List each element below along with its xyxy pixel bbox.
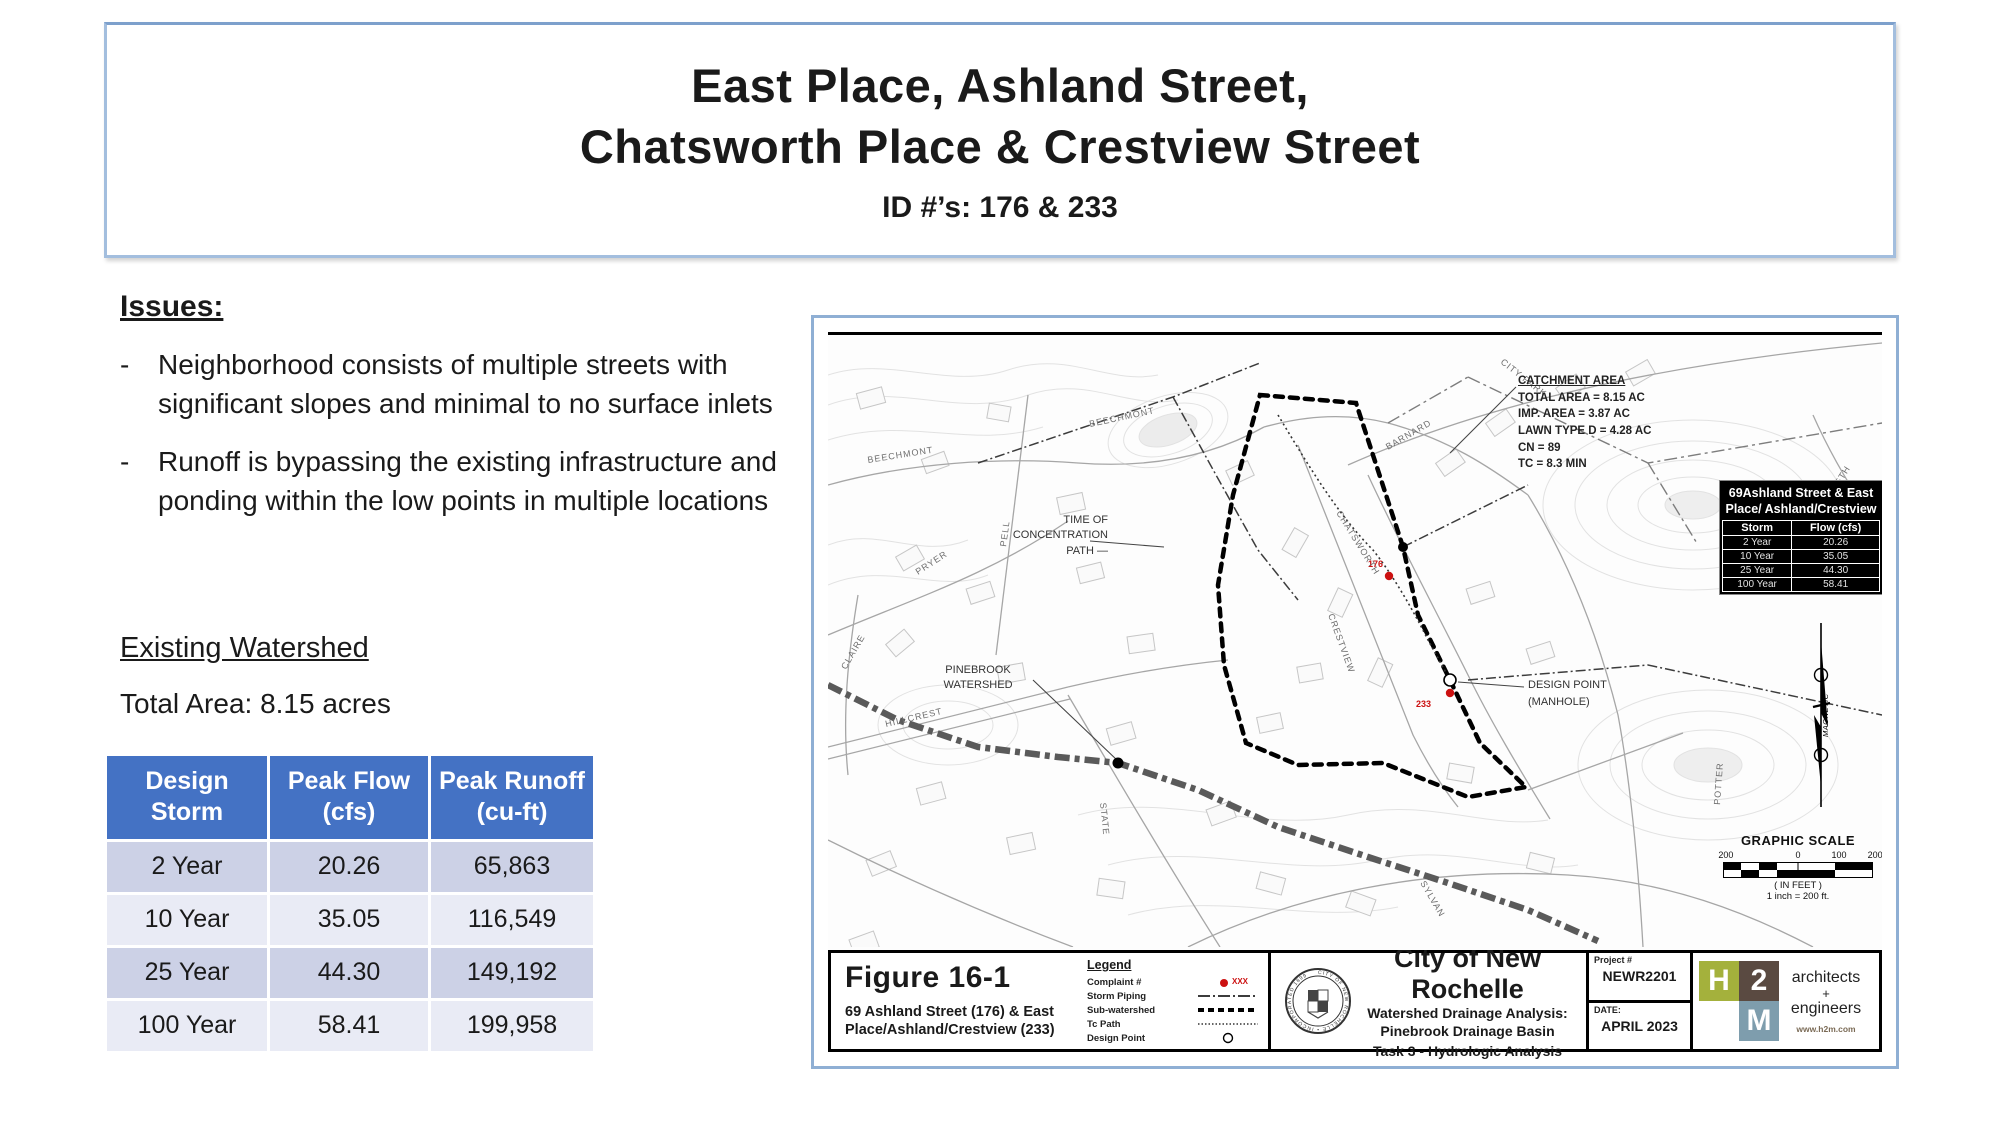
table-row: 2 Year 20.26 65,863 <box>107 842 593 892</box>
title-box: East Place, Ashland Street, Chatsworth P… <box>104 22 1896 258</box>
junction-dot <box>1398 542 1408 552</box>
stream-junction-dot <box>1113 758 1124 769</box>
legend-section: Legend Complaint # XXX Storm Piping Sub-… <box>1081 953 1271 1049</box>
catchment-line: CN = 89 <box>1518 440 1651 457</box>
scale-bar <box>1723 862 1873 878</box>
design-point-marker <box>1444 674 1456 686</box>
storm-table: Design Storm Peak Flow (cfs) Peak Runoff… <box>104 753 596 1054</box>
col-peak-runoff: Peak Runoff (cu-ft) <box>431 756 593 839</box>
complaint-233-label: 233 <box>1416 699 1431 709</box>
figure-subtitle: 69 Ashland Street (176) & East <box>845 1003 1077 1021</box>
cell-runoff: 149,192 <box>431 948 593 998</box>
page-title-line1: East Place, Ashland Street, <box>691 55 1309 116</box>
legend-label: Sub-watershed <box>1087 1005 1155 1016</box>
inset-row: 100 Year 58.41 <box>1723 578 1880 592</box>
street-label: STATE <box>1098 802 1111 836</box>
legend-storm-piping-symbol <box>1192 992 1258 1000</box>
design-point-label: DESIGN POINT (MANHOLE) <box>1528 677 1607 710</box>
dp-line: DESIGN POINT <box>1528 677 1607 694</box>
page-subtitle: ID #’s: 176 & 233 <box>882 191 1118 225</box>
svg-text:XXX: XXX <box>1232 977 1249 986</box>
toc-line: PATH — <box>978 544 1108 559</box>
bullet-dash: - <box>120 443 158 520</box>
h2m-logo: H 2 M <box>1699 961 1779 1041</box>
inset-col-flow: Flow (cfs) <box>1792 521 1880 536</box>
catchment-title: CATCHMENT AREA <box>1518 373 1651 390</box>
col-peak-flow: Peak Flow (cfs) <box>270 756 428 839</box>
toc-line: TIME OF <box>978 513 1108 528</box>
figure-subtitle: Place/Ashland/Crestview (233) <box>845 1021 1077 1039</box>
catchment-line: TC = 8.3 MIN <box>1518 456 1651 473</box>
legend-label: Tc Path <box>1087 1019 1121 1030</box>
street-label: CLAIRE <box>839 633 867 671</box>
date-value: APRIL 2023 <box>1594 1018 1685 1034</box>
north-arrow-icon: MAGNETIC <box>1813 623 1830 807</box>
inset-title-line: Place/ Ashland/Crestview <box>1724 502 1878 518</box>
cell-runoff: 199,958 <box>431 1001 593 1051</box>
issues-list: - Neighborhood consists of multiple stre… <box>120 346 780 541</box>
firm-plus: + <box>1779 987 1873 1000</box>
legend-sub-watershed-symbol <box>1192 1006 1258 1014</box>
total-area-text: Total Area: 8.15 acres <box>120 688 391 720</box>
legend-complaint-symbol: XXX <box>1192 976 1258 988</box>
street-label: CHATSWORTH <box>1334 509 1382 577</box>
toc-line: CONCENTRATION <box>978 528 1108 543</box>
legend-label: Complaint # <box>1087 977 1141 988</box>
table-row: 100 Year 58.41 199,958 <box>107 1001 593 1051</box>
map-canvas: 176 233 BEECHMONT BEECHMONT BARNARD PRYE… <box>828 332 1882 950</box>
catchment-line: IMP. AREA = 3.87 AC <box>1518 406 1651 423</box>
logo-blank <box>1699 1001 1739 1041</box>
date-label: DATE: <box>1594 1005 1685 1015</box>
logo-h: H <box>1699 961 1739 1001</box>
figure-section: Figure 16-1 69 Ashland Street (176) & Ea… <box>831 953 1081 1049</box>
logo-m: M <box>1739 1001 1779 1041</box>
slide: East Place, Ashland Street, Chatsworth P… <box>0 0 2000 1125</box>
table-row: 25 Year 44.30 149,192 <box>107 948 593 998</box>
cell-flow: 20.26 <box>270 842 428 892</box>
cell-storm: 2 Year <box>107 842 267 892</box>
pinebrook-line: WATERSHED <box>923 678 1033 693</box>
project-number-value: NEWR2201 <box>1594 968 1685 984</box>
agency-name: City of New Rochelle <box>1357 943 1578 1005</box>
issue-text: Runoff is bypassing the existing infrast… <box>158 443 780 520</box>
cell-flow: 35.05 <box>270 895 428 945</box>
issue-item: - Runoff is bypassing the existing infra… <box>120 443 780 520</box>
inset-col-storm: Storm <box>1723 521 1792 536</box>
city-seal-icon: CITY OF NEW ROCHELLE • INCORPORATED 1899 <box>1279 966 1357 1036</box>
agency-section: CITY OF NEW ROCHELLE • INCORPORATED 1899… <box>1271 953 1589 1049</box>
magnetic-label: MAGNETIC <box>1821 693 1830 737</box>
firm-section: H 2 M architects + engineers www.h2m.com <box>1693 953 1879 1049</box>
cell-storm: 100 Year <box>107 1001 267 1051</box>
project-section: Project # NEWR2201 DATE: APRIL 2023 <box>1589 953 1693 1049</box>
col-design-storm: Design Storm <box>107 756 267 839</box>
figure-number: Figure 16-1 <box>845 961 1077 995</box>
complaint-176-dot <box>1385 572 1393 580</box>
inset-row: 10 Year 35.05 <box>1723 550 1880 564</box>
cell-flow: 58.41 <box>270 1001 428 1051</box>
legend-label: Storm Piping <box>1087 991 1146 1002</box>
pinebrook-line: PINEBROOK <box>923 663 1033 678</box>
issues-heading: Issues: <box>120 290 223 324</box>
cell-runoff: 65,863 <box>431 842 593 892</box>
catchment-annotation: CATCHMENT AREA TOTAL AREA = 8.15 AC IMP.… <box>1518 373 1651 473</box>
catchment-line: LAWN TYPE D = 4.28 AC <box>1518 423 1651 440</box>
graphic-scale-title: GRAPHIC SCALE <box>1716 833 1880 848</box>
firm-website: www.h2m.com <box>1779 1024 1873 1034</box>
firm-desc: architects <box>1779 969 1873 987</box>
inset-row: 2 Year 20.26 <box>1723 536 1880 550</box>
legend-label: Design Point <box>1087 1033 1145 1044</box>
street-label: SYLVAN <box>1418 879 1447 919</box>
inset-row: 25 Year 44.30 <box>1723 564 1880 578</box>
logo-2: 2 <box>1739 961 1779 1001</box>
graphic-scale: GRAPHIC SCALE 200 0 100 200 ( IN FEET ) … <box>1716 833 1880 902</box>
project-number-label: Project # <box>1594 955 1685 965</box>
cell-runoff: 116,549 <box>431 895 593 945</box>
toc-path-label: TIME OF CONCENTRATION PATH — <box>978 513 1108 559</box>
map-figure-panel: 176 233 BEECHMONT BEECHMONT BARNARD PRYE… <box>811 315 1899 1069</box>
existing-watershed-heading: Existing Watershed <box>120 632 369 665</box>
catchment-line: TOTAL AREA = 8.15 AC <box>1518 390 1651 407</box>
page-title-line2: Chatsworth Place & Crestview Street <box>580 116 1420 177</box>
agency-sub: Pinebrook Drainage Basin <box>1357 1023 1578 1041</box>
map-titleblock: Figure 16-1 69 Ashland Street (176) & Ea… <box>828 950 1882 1052</box>
inset-title-line: 69Ashland Street & East <box>1724 486 1878 502</box>
issue-text: Neighborhood consists of multiple street… <box>158 346 780 423</box>
legend-design-point-symbol <box>1192 1032 1258 1044</box>
agency-sub: Task 3 - Hydrologic Analysis <box>1357 1043 1578 1059</box>
agency-sub: Watershed Drainage Analysis: <box>1357 1005 1578 1023</box>
scale-unit: ( IN FEET ) <box>1716 880 1880 891</box>
bullet-dash: - <box>120 346 158 423</box>
scale-ratio: 1 inch = 200 ft. <box>1716 891 1880 902</box>
street-label: CRESTVIEW <box>1326 612 1357 674</box>
legend-title: Legend <box>1087 958 1258 972</box>
cell-flow: 44.30 <box>270 948 428 998</box>
cell-storm: 10 Year <box>107 895 267 945</box>
table-header-row: Design Storm Peak Flow (cfs) Peak Runoff… <box>107 756 593 839</box>
legend-tc-path-symbol <box>1192 1020 1258 1028</box>
cell-storm: 25 Year <box>107 948 267 998</box>
issue-item: - Neighborhood consists of multiple stre… <box>120 346 780 423</box>
dp-line: (MANHOLE) <box>1528 694 1607 711</box>
inset-flow-table: 69Ashland Street & East Place/ Ashland/C… <box>1720 481 1882 594</box>
scale-ticks: 200 0 100 200 <box>1716 850 1880 862</box>
firm-desc: engineers <box>1779 1000 1873 1018</box>
pinebrook-watershed-label: PINEBROOK WATERSHED <box>923 663 1033 694</box>
table-row: 10 Year 35.05 116,549 <box>107 895 593 945</box>
complaint-233-dot <box>1446 689 1454 697</box>
